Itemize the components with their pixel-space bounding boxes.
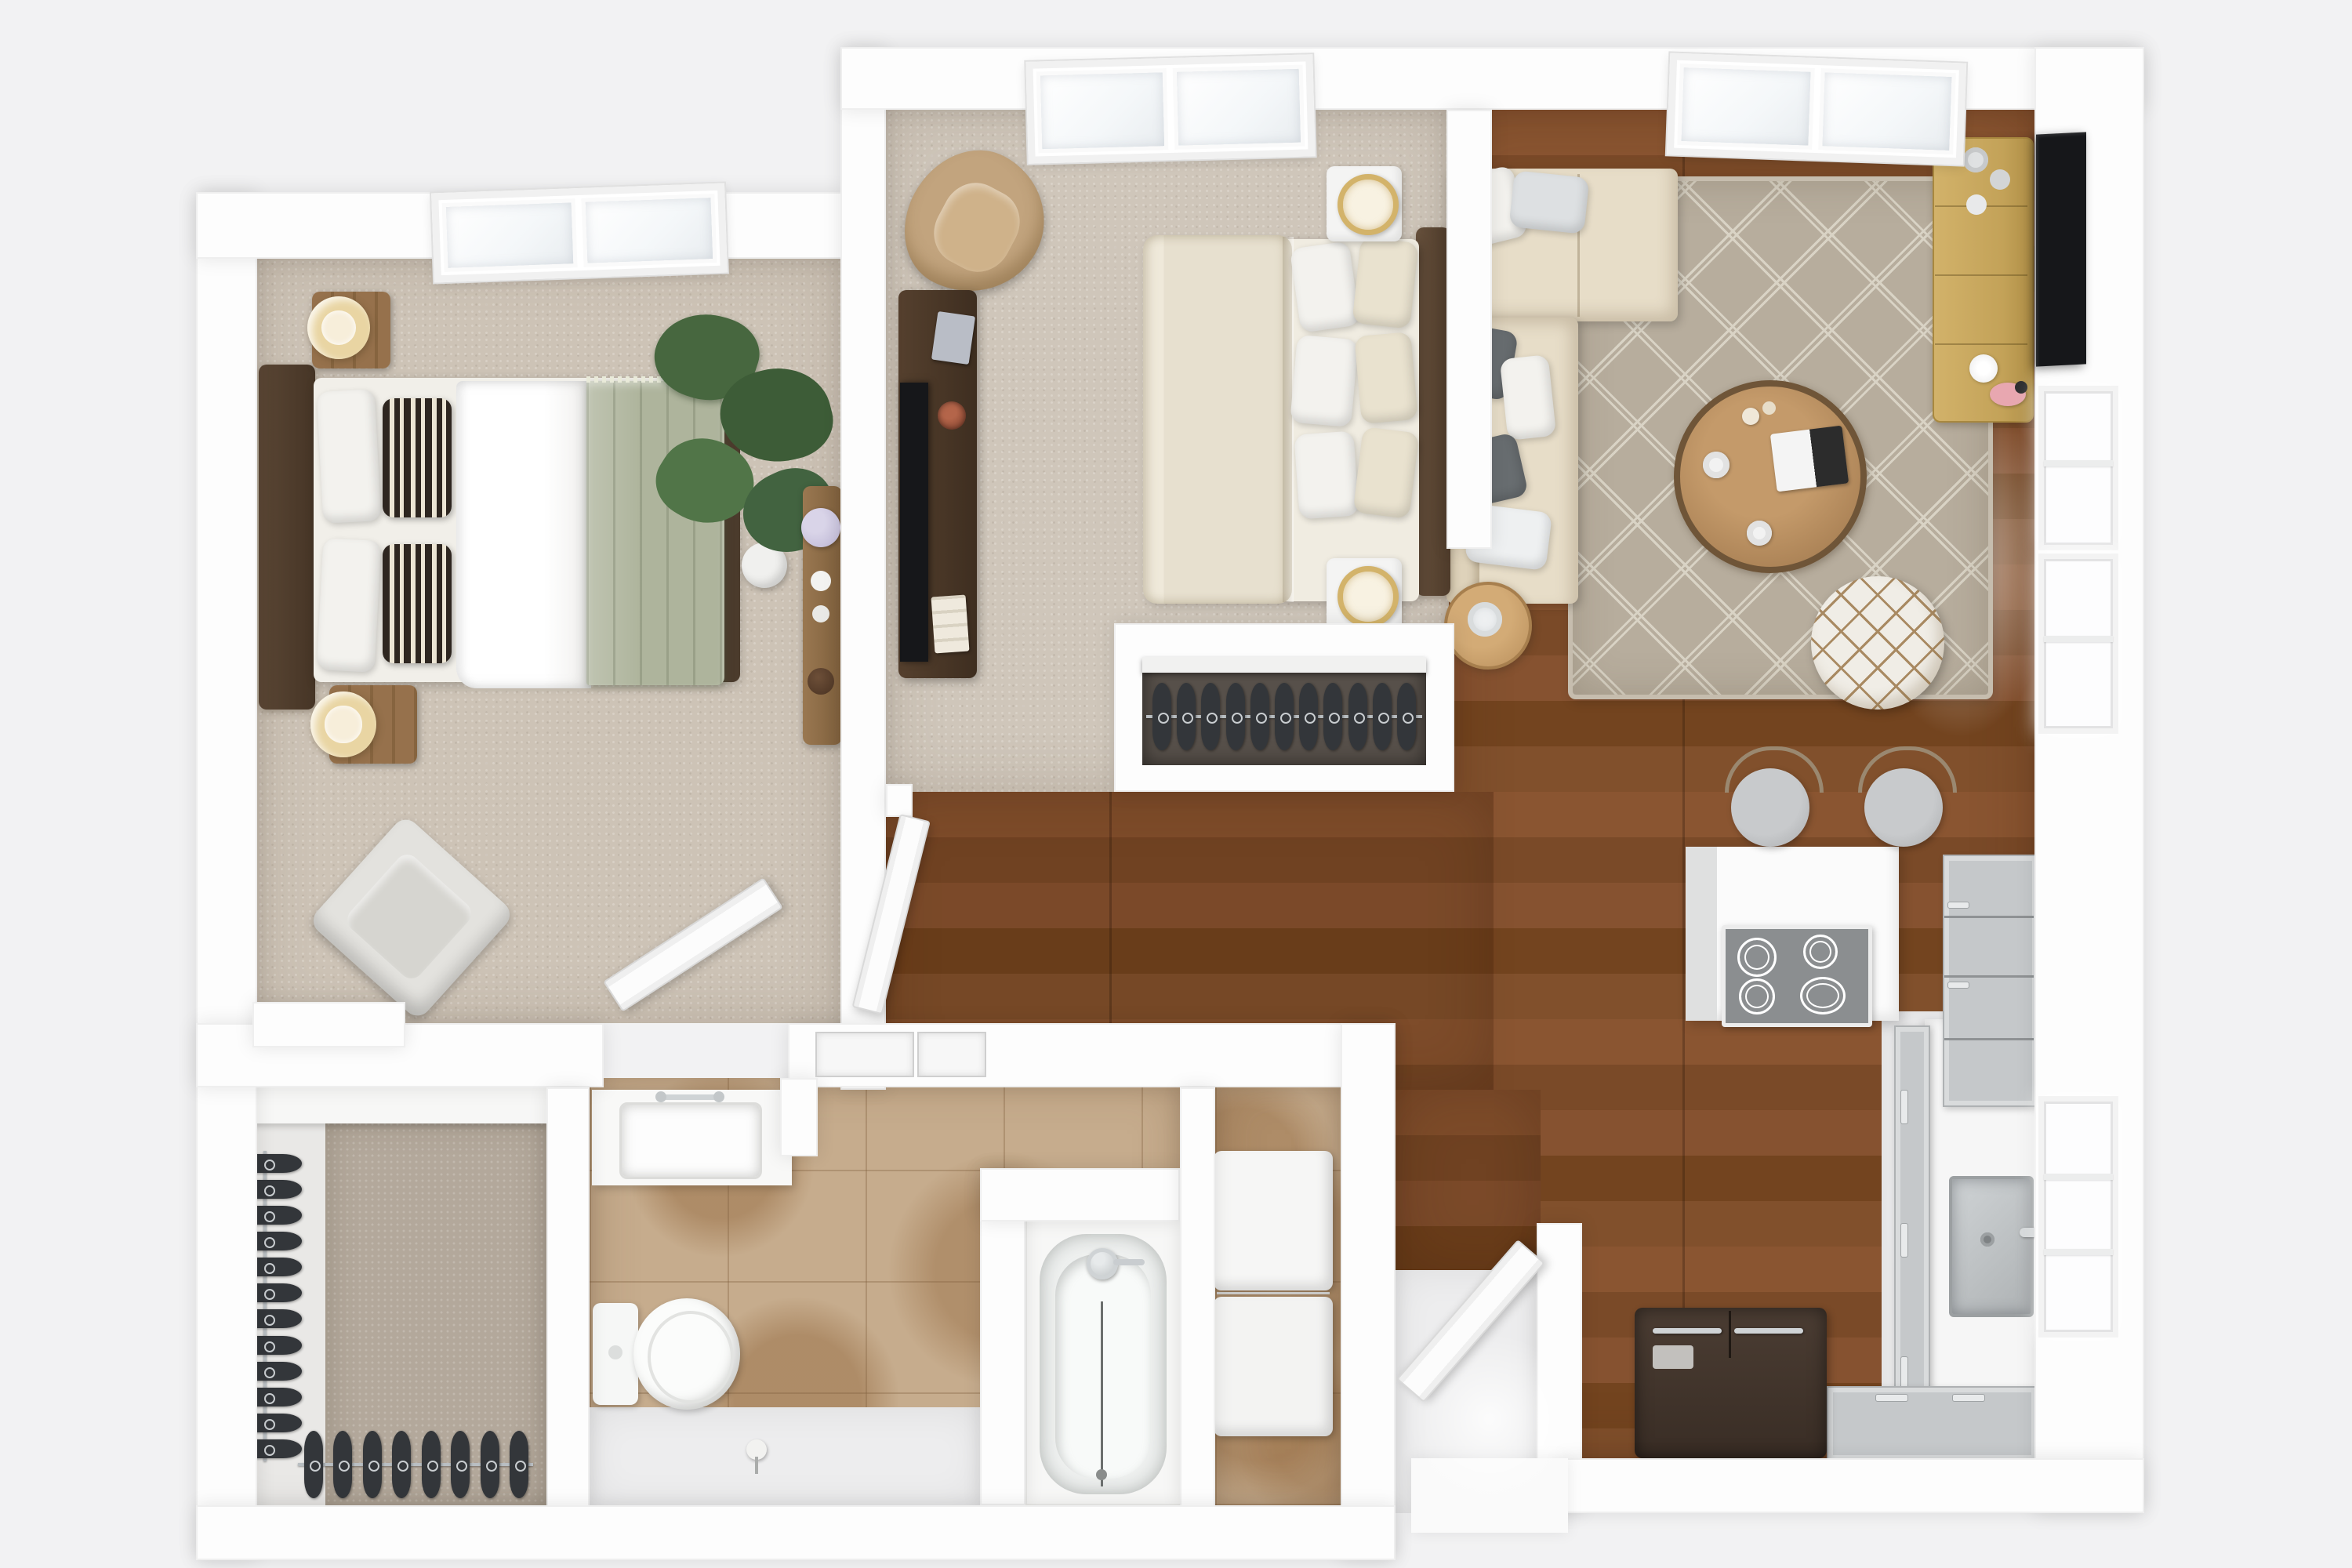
upper-cabinet-handle-2 — [1947, 982, 1969, 989]
cooktop — [1722, 925, 1872, 1027]
wall-bed2-south-stub — [886, 784, 913, 817]
bottom-cabinet-handle-1 — [1875, 1394, 1908, 1402]
toilet-seat — [648, 1311, 734, 1403]
bed2-pillow-3 — [1290, 335, 1358, 427]
bed2-console-books — [931, 595, 970, 654]
dryer — [1214, 1297, 1333, 1436]
coffee-table-magazine — [1770, 426, 1849, 492]
living-tv — [2036, 132, 2086, 366]
wall-closet-bath-divider — [546, 1087, 590, 1507]
cabinet-handle-1 — [1900, 1090, 1908, 1124]
hanger-icon — [1299, 683, 1318, 750]
master-pillow-striped-1 — [383, 398, 452, 517]
hanger-icon — [1152, 683, 1171, 750]
master-pillow-white-1 — [317, 389, 382, 524]
bed2-console-book — [931, 311, 975, 365]
master-bed-sheet — [456, 381, 591, 688]
skylight-master — [431, 183, 728, 283]
bottom-cabinet-handle-2 — [1952, 1394, 1985, 1402]
washer-gap-line — [1217, 1292, 1330, 1294]
master-pillow-white-2 — [317, 538, 382, 673]
coffee-table-candle-1 — [1742, 408, 1759, 425]
master-console-candle-2 — [812, 605, 829, 622]
wall-bottom-left — [196, 1505, 1396, 1560]
cabinet-handle-2 — [1900, 1223, 1908, 1258]
hanger-icon — [392, 1431, 411, 1498]
tub-drain-line — [1101, 1301, 1103, 1486]
sink-drain — [1980, 1232, 1994, 1247]
console-decor-vase-3 — [1966, 194, 1987, 215]
bed2-tv — [900, 383, 928, 662]
coffee-table-candle-2 — [1762, 401, 1776, 415]
master-console-bowl — [808, 668, 834, 695]
console-decor-pink-dot — [2015, 381, 2027, 394]
fridge-handle-left — [1653, 1328, 1722, 1334]
master-console-candle-1 — [811, 571, 831, 591]
bed2-pillow-5 — [1294, 430, 1359, 519]
fridge-handle-right — [1734, 1328, 1803, 1334]
bed2-pillow-4 — [1354, 332, 1417, 424]
shower-arm — [1113, 1259, 1145, 1265]
vanity-basin — [619, 1102, 762, 1179]
bed2-duvet-fold — [1283, 237, 1294, 602]
bed2-pillow-6 — [1353, 426, 1420, 519]
cooktop-burner-br — [1800, 977, 1846, 1014]
skylight-pane — [1818, 68, 1956, 154]
closet2-hangers — [1152, 681, 1416, 753]
side-table-candle — [1468, 602, 1502, 637]
bathroom-pocket-door-2 — [917, 1032, 986, 1077]
hanger-icon — [1201, 683, 1220, 750]
window-kitchen — [2038, 1096, 2118, 1338]
bed2-lamp-top — [1338, 174, 1399, 235]
skylight-living — [1667, 53, 1966, 165]
bed2-console-bowl — [938, 401, 966, 430]
tub-drain — [1096, 1469, 1107, 1480]
skylight-pane — [581, 194, 717, 267]
bathroom-pocket-door-1 — [815, 1032, 914, 1077]
bed2-duvet — [1143, 235, 1292, 604]
cooktop-burner-tr — [1803, 935, 1838, 969]
bed2-headboard — [1416, 227, 1450, 596]
skylight-pane — [1677, 64, 1815, 150]
hanger-icon — [333, 1431, 352, 1498]
sofa-pillow-gray-light — [1508, 170, 1589, 234]
console-decor-vase-1 — [1963, 147, 1988, 172]
vanity-faucet-bar — [663, 1094, 717, 1100]
master-headboard — [259, 365, 315, 710]
skylight-bedroom2 — [1025, 54, 1315, 164]
walkin-shelf-band — [227, 1087, 546, 1123]
console-decor-vase-2 — [1990, 169, 2010, 190]
hanger-icon — [304, 1431, 323, 1498]
fridge-dispenser — [1653, 1345, 1693, 1369]
wall-west-outer — [196, 192, 257, 1560]
bathtub-inner — [1055, 1254, 1151, 1479]
wall-bath-stub — [780, 1078, 818, 1156]
hanger-icon — [1323, 683, 1342, 750]
hanger-icon — [481, 1431, 499, 1498]
kitchen-upper-cabinets — [1943, 855, 2038, 1107]
master-pillow-striped-2 — [383, 544, 452, 663]
pouf — [1811, 576, 1944, 710]
floor-plan-stage — [0, 0, 2352, 1568]
hanger-icon — [1348, 683, 1367, 750]
hanger-icon — [1226, 683, 1245, 750]
skylight-pane — [1173, 65, 1305, 150]
window-living-2 — [2038, 554, 2118, 734]
master-lamp-top — [307, 296, 370, 359]
bed2-pillow-1 — [1290, 241, 1360, 333]
hanger-icon — [422, 1431, 441, 1498]
kitchen-sink — [1949, 1176, 2034, 1317]
wall-divider-bed2-living — [1446, 110, 1492, 549]
bed2-lamp-bottom — [1338, 566, 1399, 627]
window-living-1 — [2038, 386, 2118, 550]
floor-bathroom-white-zone — [590, 1407, 982, 1505]
hanger-icon — [1373, 683, 1392, 750]
hanger-icon — [1397, 683, 1416, 750]
master-console-flowers — [801, 508, 840, 547]
kitchen-peninsula-side — [1686, 847, 1717, 1021]
wall-tub-ledge — [980, 1168, 1180, 1221]
hanger-icon — [363, 1431, 382, 1498]
vanity-handle-left — [655, 1091, 666, 1102]
master-lamp-bottom — [310, 691, 376, 757]
upper-cabinet-handle-1 — [1947, 902, 1969, 909]
fridge-door-split — [1729, 1311, 1731, 1358]
skylight-pane — [1036, 68, 1169, 153]
master-bed-sage-blanket — [586, 381, 724, 685]
bed2-pillow-2 — [1352, 237, 1418, 328]
toilet-paper-pole — [755, 1457, 758, 1474]
closet2-shelf — [1142, 657, 1426, 673]
wall-master-sw-ledge — [252, 1002, 405, 1047]
vanity-handle-right — [713, 1091, 724, 1102]
cooktop-burner-bl — [1739, 978, 1775, 1014]
hanger-icon — [451, 1431, 470, 1498]
kitchen-bottom-cabinets — [1827, 1386, 2038, 1461]
hanger-icon — [1177, 683, 1196, 750]
walkin-hangers-bottom — [304, 1430, 528, 1499]
cooktop-burner-tl — [1737, 938, 1777, 977]
upper-cabinet-seams — [1944, 916, 2034, 918]
sofa-pillow-white-2 — [1500, 354, 1557, 441]
hanger-icon — [510, 1431, 528, 1498]
wall-bottom-right — [1560, 1458, 2144, 1513]
coffee-table-cup-1 — [1703, 452, 1730, 478]
skylight-pane — [442, 198, 578, 272]
wall-laundry-east — [1341, 1023, 1396, 1560]
wall-bath-laundry-divider — [1180, 1087, 1215, 1507]
hanger-icon — [1250, 683, 1269, 750]
hanger-icon — [1275, 683, 1294, 750]
coffee-table-cup-2 — [1747, 521, 1772, 546]
washer — [1214, 1151, 1333, 1290]
toilet-flush-button — [608, 1345, 622, 1359]
console-decor-flower — [1969, 354, 1998, 383]
